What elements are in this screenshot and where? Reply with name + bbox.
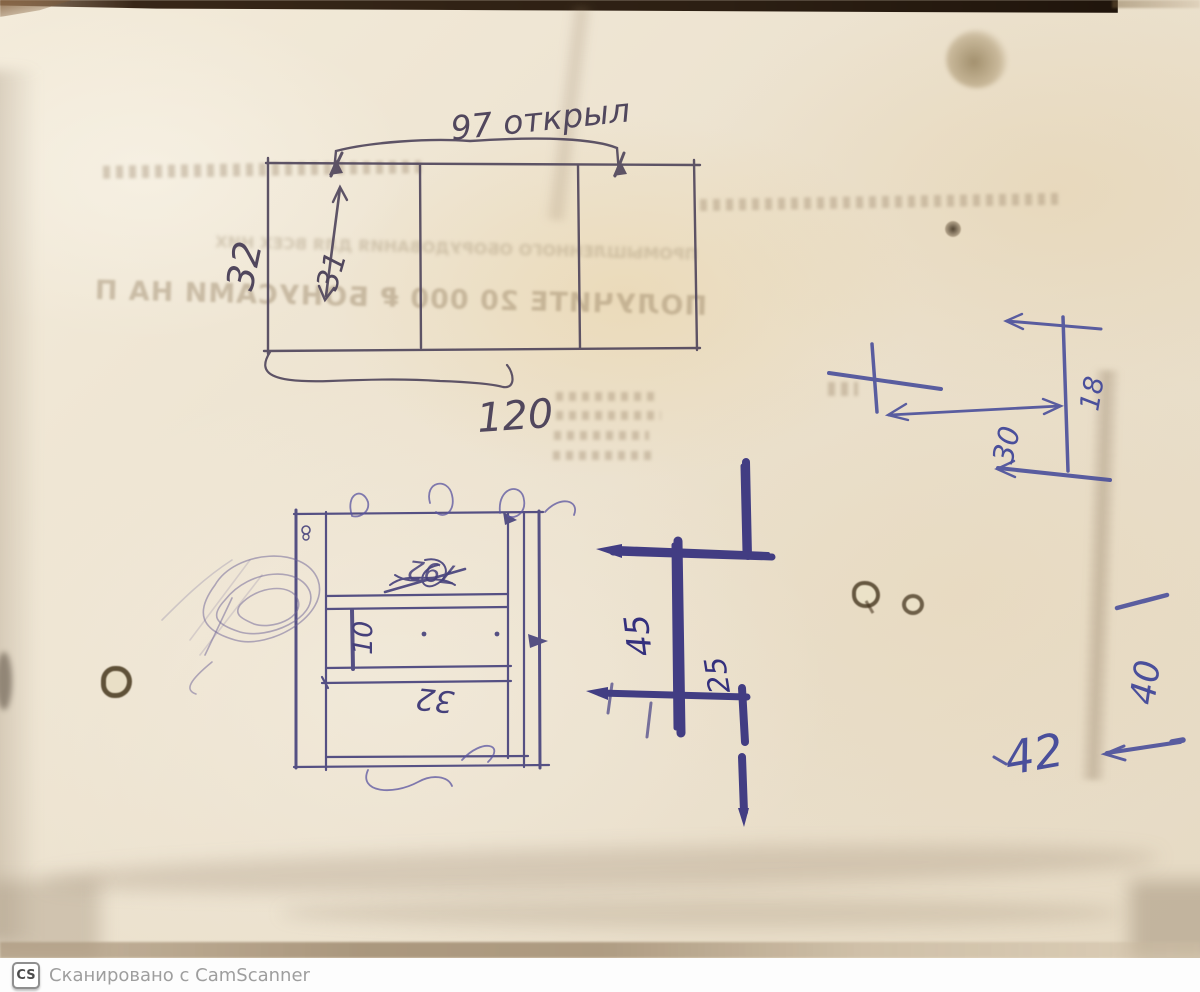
dim-45-label: 45 <box>616 612 660 658</box>
camscanner-logo: CS <box>12 962 40 989</box>
dim-10-label: 10 <box>348 621 379 655</box>
dim-40-label: 40 <box>1123 658 1169 708</box>
sketch-layer: 97 открыл 32 31 120 <box>0 0 1200 958</box>
dim-31-label: 31 <box>310 248 354 294</box>
camscanner-text: Сканировано с CamScanner <box>49 965 310 986</box>
scanned-page: ПОЛУЧИТЕ 20 000 ₽ БОНУСАМИ НА ПОКУПКУ ПР… <box>0 0 1200 992</box>
corner-detail-labels: 30 18 <box>986 374 1111 467</box>
edge-dimension-labels: 40 42 <box>1001 658 1170 786</box>
dim-42-label: 42 <box>1001 722 1068 785</box>
scribbled-number: 792 <box>406 553 459 589</box>
paper-photo: ПОЛУЧИТЕ 20 000 ₽ БОНУСАМИ НА ПОКУПКУ ПР… <box>0 0 1200 958</box>
dim-30-label: 30 <box>986 423 1027 467</box>
top-panel-labels: 97 открыл 32 31 120 <box>218 90 632 442</box>
dim-18-label: 18 <box>1074 374 1110 413</box>
corner-detail <box>829 314 1110 480</box>
dim-120-label: 120 <box>475 391 554 442</box>
dim-32-label: 32 <box>218 237 271 293</box>
cabinet-drawing <box>294 510 549 770</box>
dim-25-label: 25 <box>698 654 737 696</box>
dim-32b-label: 32 <box>414 680 456 719</box>
profile-sketch <box>586 462 772 827</box>
camscanner-bar: CS Сканировано с CamScanner <box>0 958 1200 992</box>
